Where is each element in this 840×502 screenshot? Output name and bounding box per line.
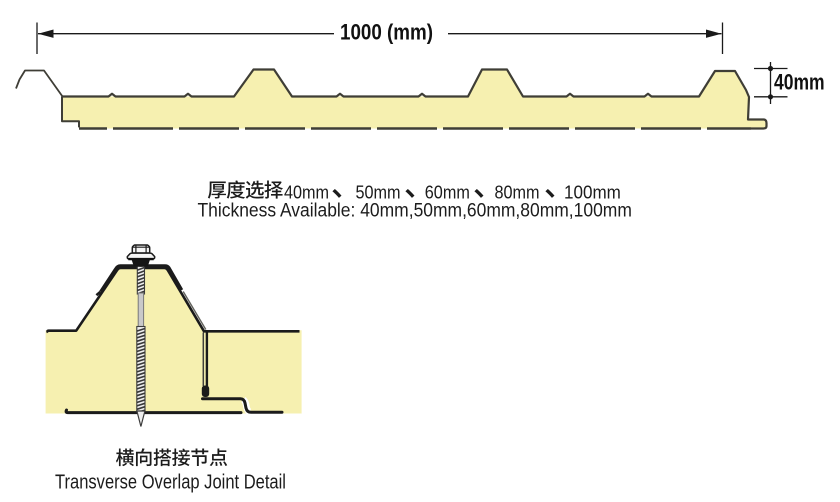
- svg-text:1000 (mm): 1000 (mm): [340, 20, 433, 45]
- svg-text:Transverse Overlap Joint Detai: Transverse Overlap Joint Detail: [55, 470, 286, 493]
- svg-text:40mm: 40mm: [774, 71, 825, 95]
- svg-text:Thickness Available: 40mm,50mm: Thickness Available: 40mm,50mm,60mm,80mm…: [198, 199, 632, 221]
